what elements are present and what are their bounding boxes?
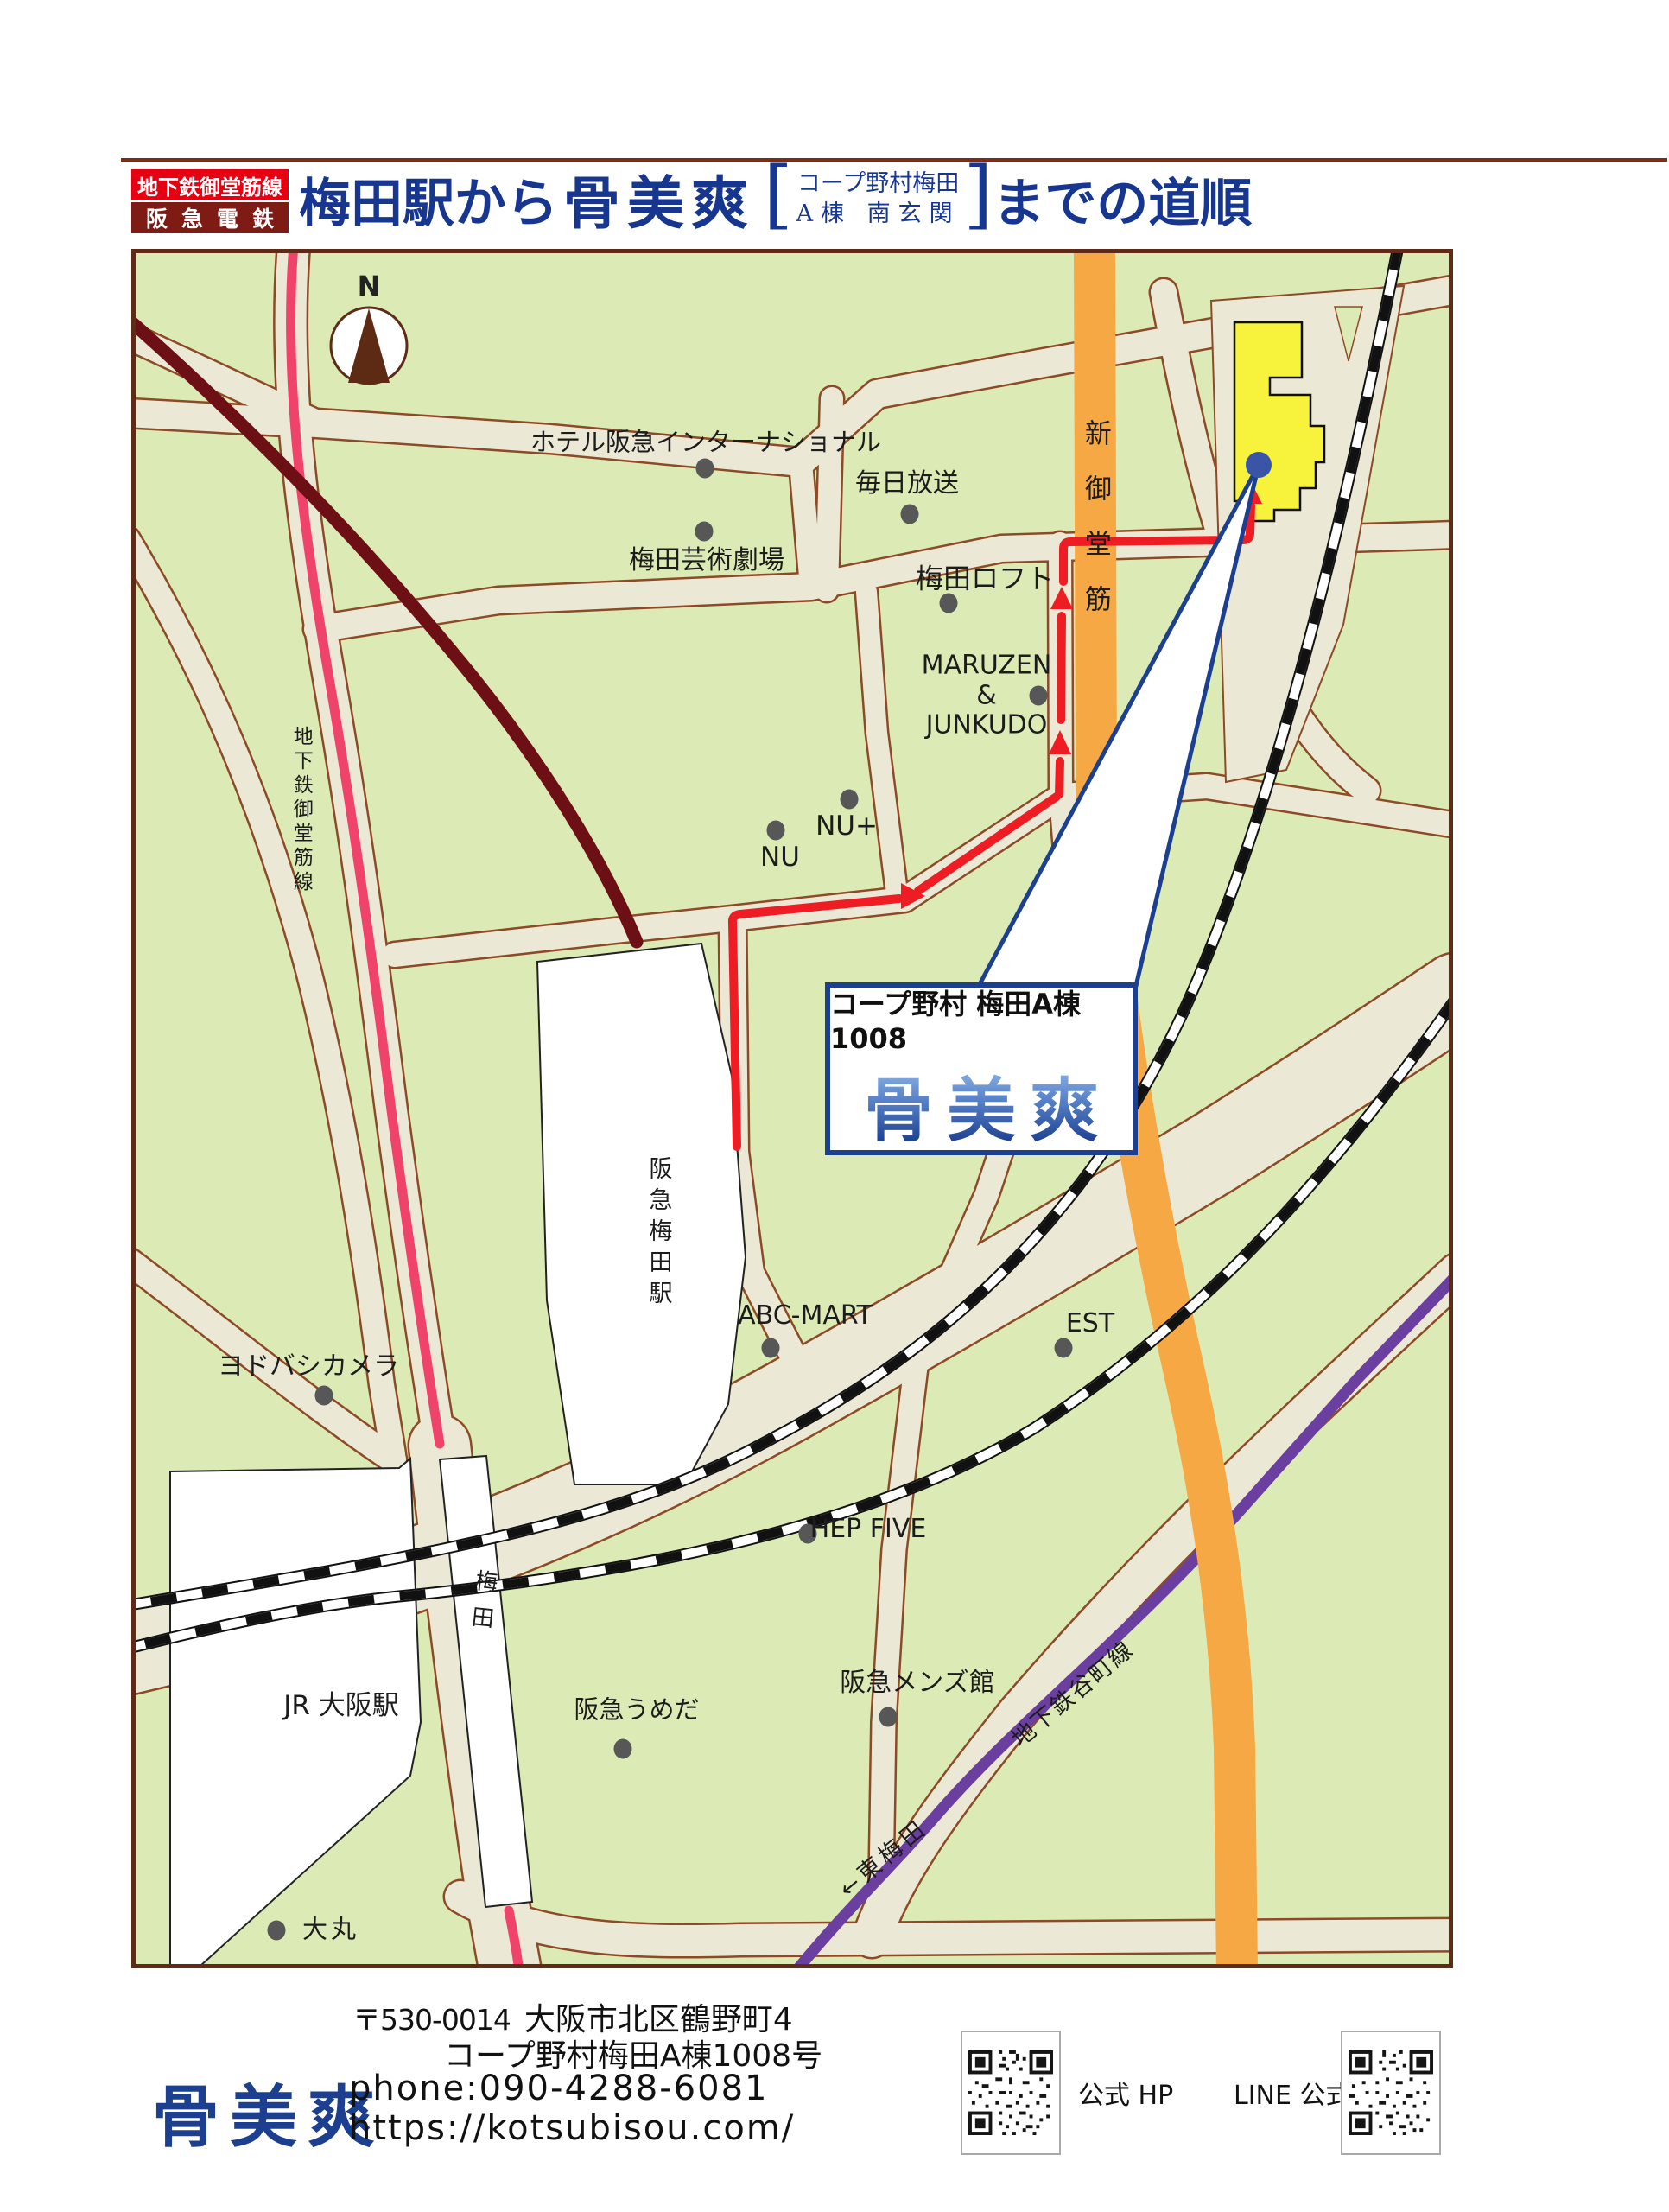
bracket-line1: コープ野村梅田: [796, 168, 961, 199]
landmark-hotel-hankyu: ホテル阪急インターナショナル: [530, 428, 881, 456]
landmark-nu-plus: NU+: [815, 811, 878, 842]
flyer-page: 地下鉄御堂筋線 阪急電鉄 梅田駅から 骨美爽 [ コープ野村梅田 A棟 南玄関 …: [0, 0, 1669, 2212]
landmark-umeda-loft: 梅田ロフト: [916, 563, 1054, 595]
bracket-open: [: [764, 163, 793, 226]
label-shin-midosuji: 新御堂筋: [1079, 419, 1110, 640]
landmark-yodobashi-camera: ヨドバシカメラ: [218, 1352, 399, 1382]
phone-number: 090-4288-6081: [479, 2069, 769, 2108]
badge-midosuji-line: 地下鉄御堂筋線: [131, 169, 289, 200]
landmark-nu: NU: [760, 842, 800, 874]
qr-line-official: [1341, 2031, 1441, 2155]
label-jr-osaka-station: JR 大阪駅: [283, 1691, 399, 1722]
landmark-abc-mart: ABC-MART: [738, 1301, 873, 1332]
qr-line-official-pattern: [1349, 2050, 1433, 2135]
landmark-est: EST: [1066, 1309, 1114, 1339]
phone-label: phone:: [349, 2069, 479, 2108]
landmark-hankyu-mens: 阪急メンズ館: [840, 1669, 994, 1699]
callout-brand: 骨美爽: [850, 1055, 1113, 1155]
landmark-mainichi-broadcasting: 毎日放送: [855, 469, 959, 499]
route-map: N ホテル阪急インターナショナル 梅田芸術劇場 毎日放送 梅田ロフト MARUZ…: [131, 249, 1453, 1968]
qr-official-hp: [961, 2031, 1061, 2155]
badge-hankyu-railway: 阪急電鉄: [131, 202, 289, 233]
bracket-close: ]: [964, 163, 993, 226]
rail-badges: 地下鉄御堂筋線 阪急電鉄: [131, 169, 289, 233]
title-from: 梅田駅から: [299, 162, 558, 237]
qr-line-label: LINE 公式: [1234, 2074, 1352, 2112]
label-midosuji-subway-line: 地下鉄御堂筋線: [289, 726, 312, 895]
destination-callout: コープ野村 梅田A棟1008 骨美爽: [825, 982, 1138, 1155]
landmark-umeda-arts-theater: 梅田芸術劇場: [629, 546, 784, 576]
bracket-line2: A棟 南玄関: [796, 199, 961, 229]
qr-official-hp-pattern: [968, 2050, 1053, 2135]
landmark-hankyu-umeda-store: 阪急うめだ: [574, 1695, 699, 1724]
footer-url: https://kotsubisou.com/: [349, 2108, 795, 2148]
landmark-hep-five: HEP FIVE: [810, 1515, 927, 1545]
footer-phone: phone:090-4288-6081: [349, 2069, 768, 2108]
qr-official-hp-label: 公式 HP: [1078, 2074, 1173, 2112]
destination-dot: [1246, 452, 1272, 478]
hankyu-umeda-station-building: [537, 944, 746, 1484]
compass-north-label: N: [358, 270, 381, 302]
landmark-daimaru: 大丸: [302, 1915, 359, 1943]
title-to: までの道順: [993, 162, 1252, 237]
page-title: 梅田駅から 骨美爽 [ コープ野村梅田 A棟 南玄関 ] までの道順: [299, 161, 1252, 237]
label-hankyu-umeda-station: 阪急梅田駅: [644, 1156, 671, 1312]
landmark-maruzen-junkudo: MARUZEN & JUNKUDO: [922, 651, 1052, 741]
callout-address: コープ野村 梅田A棟1008: [830, 982, 1133, 1055]
title-bracket-text: コープ野村梅田 A棟 南玄関: [796, 168, 961, 229]
compass: [331, 308, 407, 384]
title-brand: 骨美爽: [563, 157, 755, 240]
